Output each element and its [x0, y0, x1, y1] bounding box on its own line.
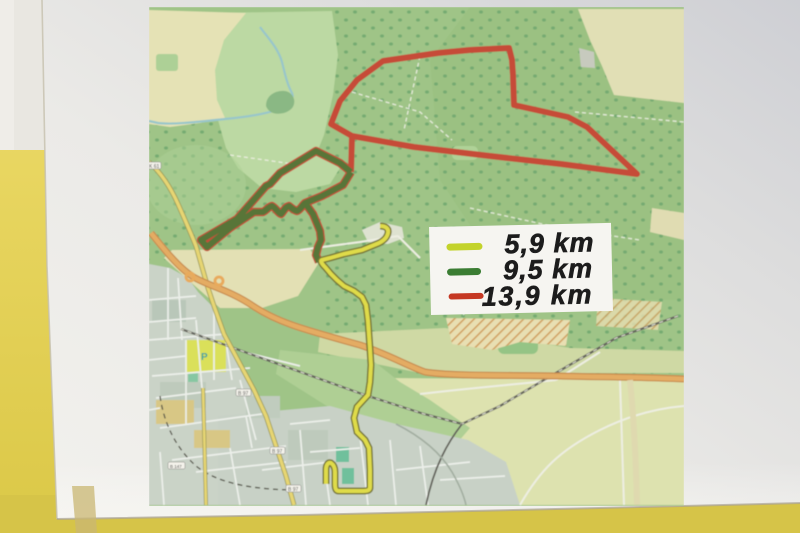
svg-text:13,9 km: 13,9 km — [481, 279, 593, 312]
